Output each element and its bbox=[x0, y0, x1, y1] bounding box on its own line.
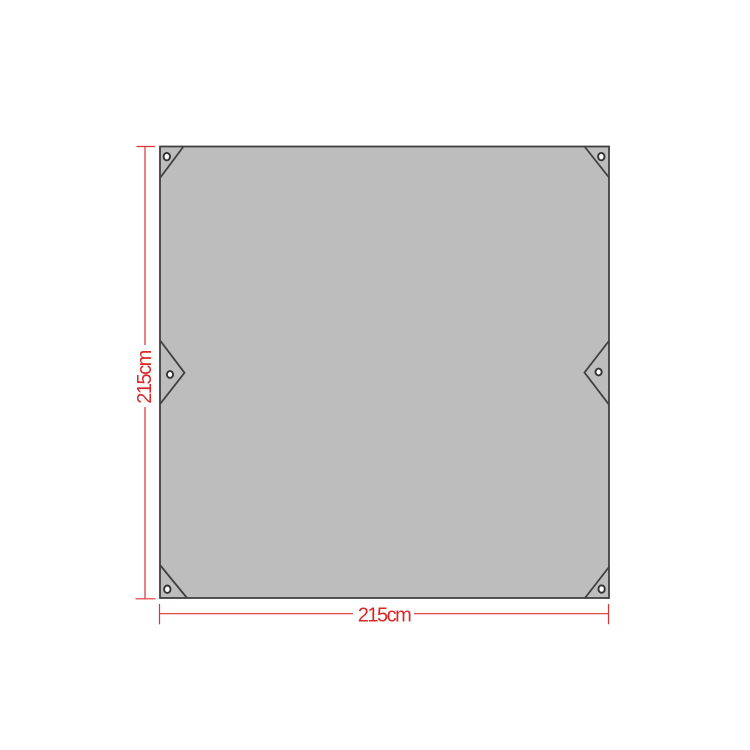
svg-text:215cm: 215cm bbox=[358, 605, 411, 627]
svg-text:215cm: 215cm bbox=[134, 350, 156, 403]
